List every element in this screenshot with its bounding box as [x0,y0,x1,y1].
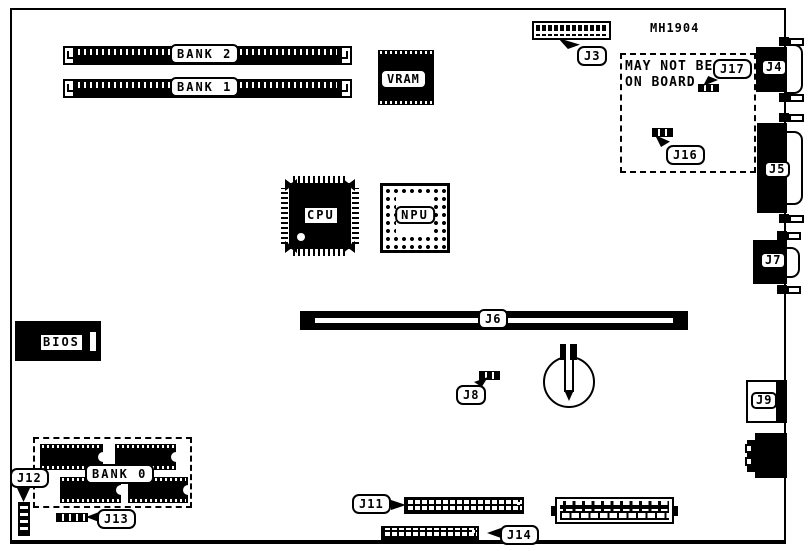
power-sockets-row [560,511,669,520]
bank2-label: BANK 2 [170,44,239,64]
j7-mount-screw-top [787,232,801,240]
motherboard-diagram: BANK 2 BANK 1 VRAM J3 MH1904 MAY NOT BE … [0,0,810,551]
j6-label: J6 [478,309,508,329]
j4-dsub-outline [786,44,803,94]
j7-mount-tab-top [777,231,787,240]
power-tab-left [551,506,555,516]
pin1-marker [472,530,475,533]
j16-callout: J16 [666,145,705,165]
j4-mount-tab-top [779,37,789,46]
cpu-label: CPU [305,208,337,223]
board-title: MH1904 [650,21,699,35]
bank1-label: BANK 1 [170,77,239,97]
cpu-pin1-dot [297,233,305,241]
din-pin-hole-bottom [745,457,753,466]
j7-label: J7 [760,252,786,269]
din-connector [755,433,787,478]
j8-callout: J8 [456,385,486,405]
chip-pins [380,51,432,54]
cpu-pins-bottom [293,249,347,256]
dip-notch [116,485,121,495]
din-pin-hole-top [745,444,753,453]
cpu-corner-mark [343,179,355,191]
crystal-tip [565,392,573,401]
power-tab-right [674,506,678,516]
j9-label: J9 [751,392,777,409]
cpu-corner-mark [343,241,355,253]
j11-header [404,497,524,514]
j3-header [532,21,611,40]
bank0-label: BANK 0 [85,464,154,484]
power-connector [555,497,674,524]
cpu-pins-left [281,188,288,244]
j11-callout: J11 [352,494,391,514]
j5-mount-screw-top [789,114,804,122]
simm-clip-left [63,79,75,98]
j7-mount-screw-bottom [787,286,801,294]
j8-jumper [479,371,500,380]
cpu-pins-top [293,176,347,183]
j13-header [56,513,88,522]
j14-callout: J14 [500,525,539,545]
j12-header [18,502,30,536]
simm-clip-left [63,46,75,65]
cpu-corner-mark [285,241,297,253]
j7-mount-tab-bottom [777,285,787,294]
j17-jumper [698,84,719,92]
j17-callout: J17 [713,59,752,79]
chip-pins [380,101,432,104]
j12-callout: J12 [10,468,49,488]
simm-clip-right [340,79,352,98]
cpu-corner-mark [285,179,297,191]
j7-dsub-outline [786,247,800,278]
crystal-top [560,344,577,360]
npu-label: NPU [395,206,435,224]
j5-label: J5 [764,161,790,178]
j5-mount-screw-bottom [789,215,804,223]
j4-mount-tab-bottom [779,93,789,102]
j3-callout: J3 [577,46,607,66]
crystal-body [564,360,574,392]
dip-notch [98,452,103,462]
dip-notch [171,452,176,462]
bios-socket-notch [90,332,96,351]
cpu-chip: CPU [281,176,359,256]
j14-header [381,526,479,540]
j13-callout: J13 [97,509,136,529]
j4-mount-screw-top [789,38,804,46]
bios-label: BIOS [41,335,82,350]
pin1-marker [517,502,520,505]
simm-clip-right [340,46,352,65]
cpu-pins-right [352,188,359,244]
j16-jumper [652,128,673,137]
j4-label: J4 [761,59,787,76]
vram-label: VRAM [380,69,427,89]
j5-mount-tab-bottom [779,214,789,223]
dip-notch [183,485,188,495]
j9-body [776,382,785,421]
j4-mount-screw-bottom [789,94,804,102]
j5-mount-tab-top [779,113,789,122]
npu-socket: NPU [380,183,450,253]
